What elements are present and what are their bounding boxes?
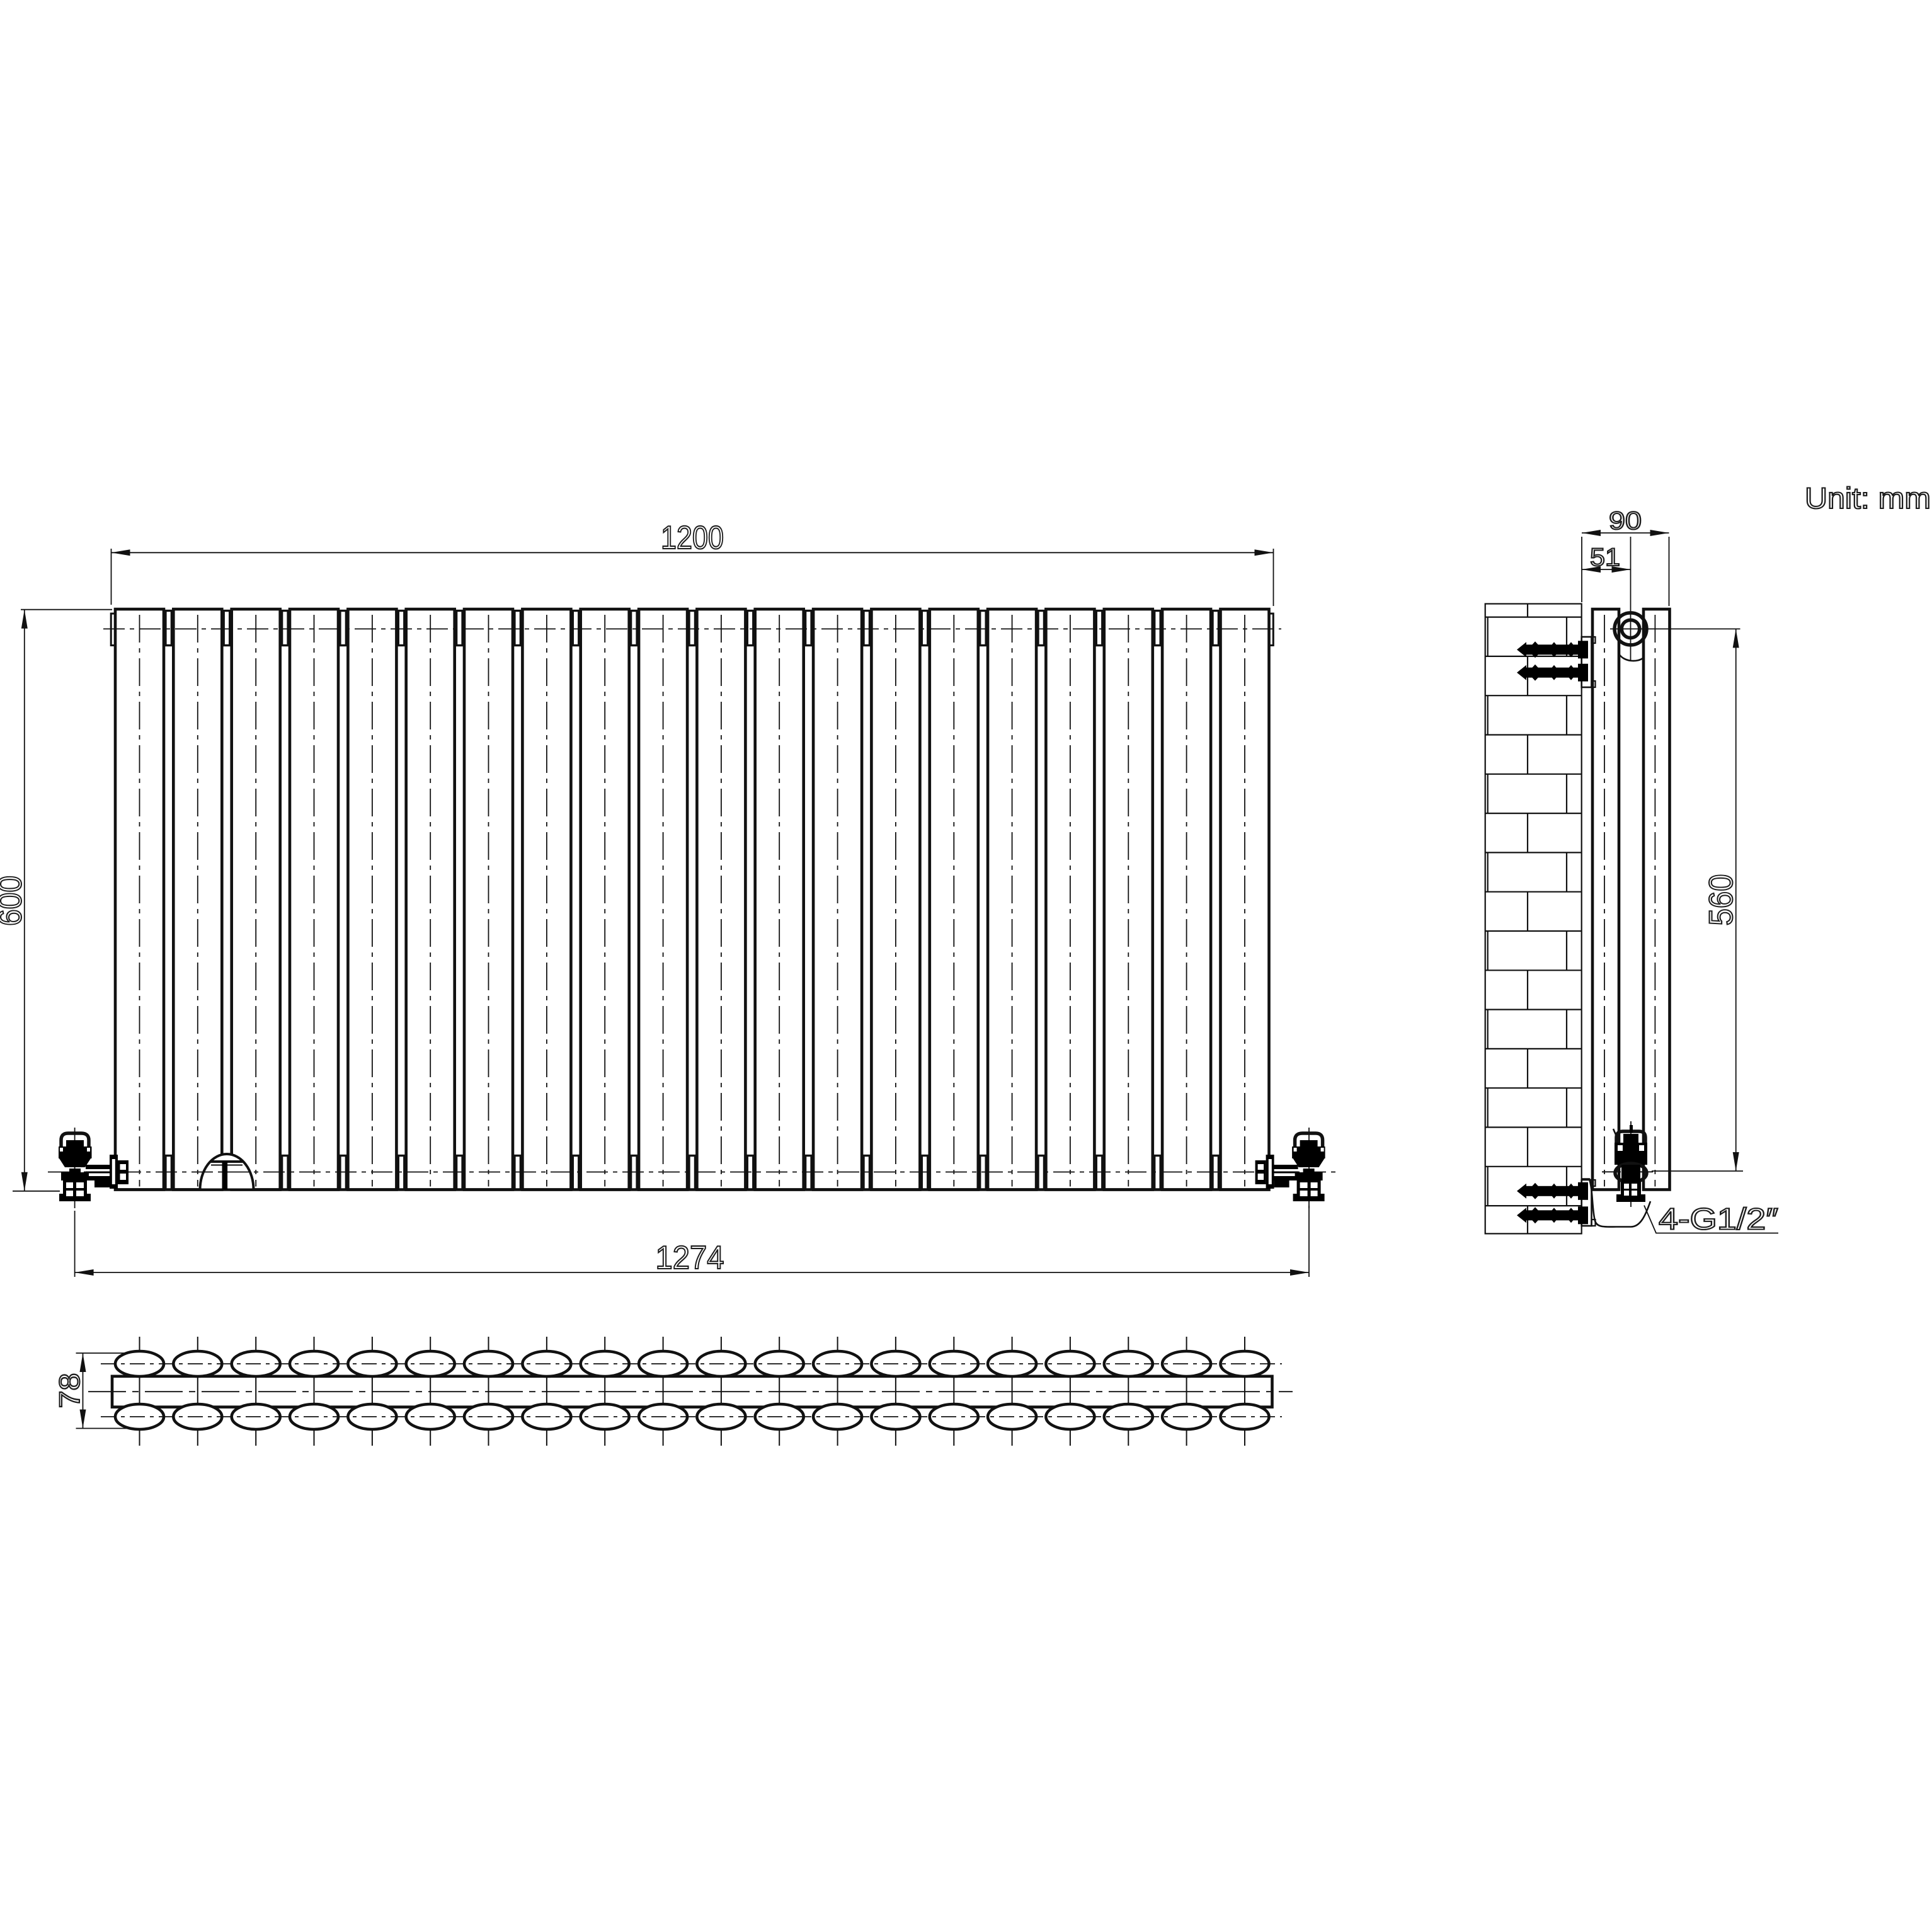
svg-text:90: 90 [1609, 507, 1642, 535]
svg-text:560: 560 [1703, 874, 1740, 926]
svg-text:1274: 1274 [656, 1240, 724, 1276]
svg-text:51: 51 [1590, 544, 1620, 571]
svg-text:78: 78 [54, 1373, 86, 1409]
svg-text:Unit: mm: Unit: mm [1805, 481, 1931, 515]
svg-text:600: 600 [0, 876, 29, 926]
svg-text:4-G1/2″: 4-G1/2″ [1659, 1203, 1778, 1237]
svg-text:1200: 1200 [661, 520, 724, 556]
